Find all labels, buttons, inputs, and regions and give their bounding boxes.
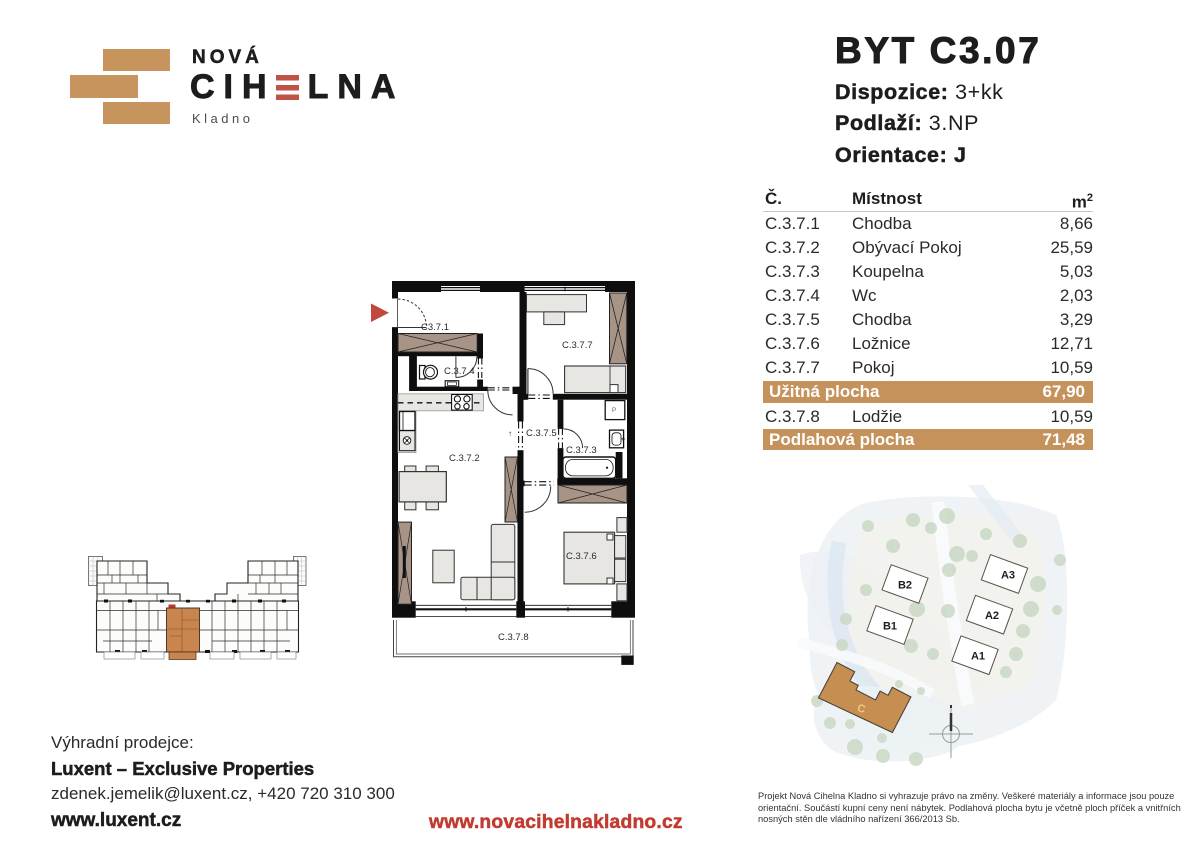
svg-text:B1: B1 bbox=[883, 621, 897, 633]
svg-text:C.3.7.4: C.3.7.4 bbox=[444, 366, 475, 377]
svg-text:C.3.7.7: C.3.7.7 bbox=[562, 340, 593, 351]
svg-text:C3.7.1: C3.7.1 bbox=[421, 322, 449, 333]
svg-text:↑: ↑ bbox=[508, 429, 512, 438]
svg-text:A2: A2 bbox=[985, 610, 999, 622]
svg-text:C.3.7.8: C.3.7.8 bbox=[498, 632, 529, 643]
svg-text:A3: A3 bbox=[1001, 570, 1015, 582]
svg-text:C.3.7.5: C.3.7.5 bbox=[526, 428, 557, 439]
svg-text:C.3.7.3: C.3.7.3 bbox=[566, 445, 597, 456]
svg-text:P: P bbox=[612, 407, 616, 414]
svg-text:B2: B2 bbox=[898, 580, 912, 592]
svg-text:C.3.7.6: C.3.7.6 bbox=[566, 551, 597, 562]
svg-text:A1: A1 bbox=[971, 651, 985, 663]
svg-text:C.3.7.2: C.3.7.2 bbox=[449, 453, 480, 464]
